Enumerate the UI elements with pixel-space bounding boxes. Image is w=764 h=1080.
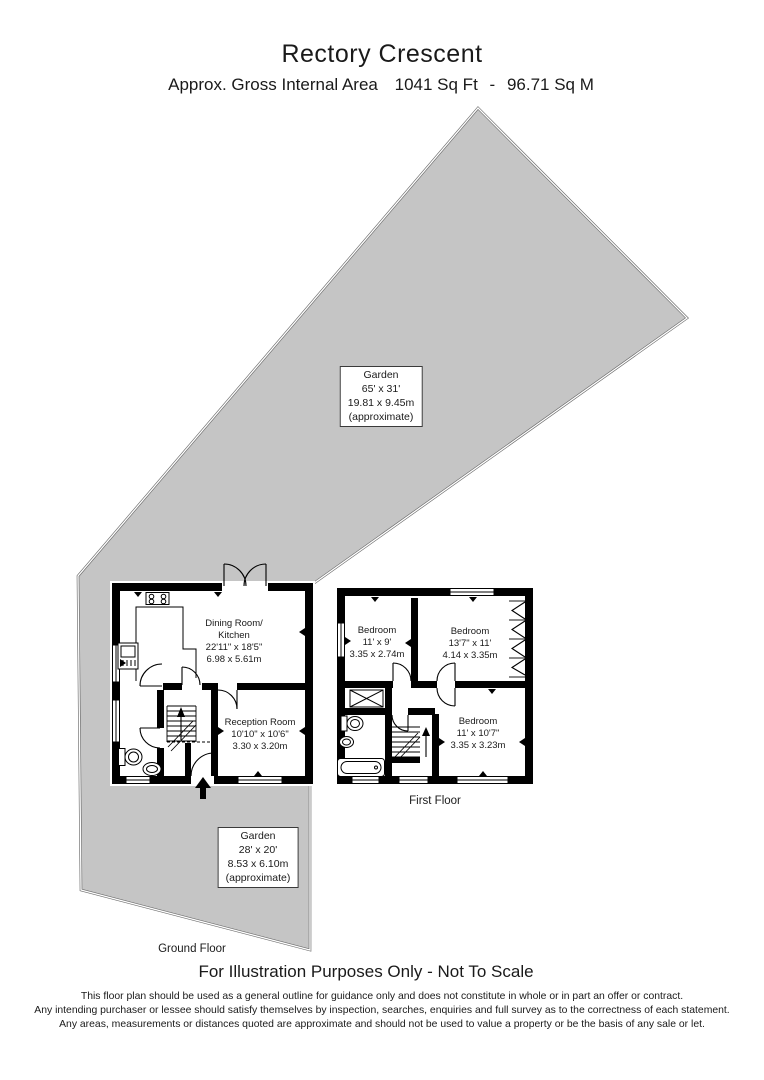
floor-label-first: First Floor — [409, 795, 461, 807]
disclaimer-line: Any intending purchaser or lessee should… — [0, 1004, 764, 1018]
toilet-icon — [341, 716, 363, 731]
first-floor-plan — [335, 586, 535, 788]
floor-plan-canvas — [0, 0, 764, 1080]
room-label-bedroom-2: Bedroom 13'7" x 11' 4.14 x 3.35m — [443, 626, 498, 662]
area-sqft: 1041 Sq Ft — [395, 75, 478, 94]
garden-approx-note: (approximate) — [348, 411, 415, 425]
garden-size-imperial: 28' x 20' — [226, 844, 291, 858]
area-sqm: 96.71 Sq M — [507, 75, 594, 94]
garden-area — [78, 108, 687, 950]
garden-name: Garden — [348, 369, 415, 383]
area-separator: - — [490, 75, 496, 94]
toilet-icon — [119, 749, 143, 766]
room-label-bedroom-3: Bedroom 11' x 10'7" 3.35 x 3.23m — [451, 716, 506, 752]
garden-label-rear: Garden 65' x 31' 19.81 x 9.45m (approxim… — [340, 366, 423, 427]
ground-floor-plan — [110, 564, 315, 799]
hob-icon — [146, 593, 169, 605]
disclaimer-line: Any areas, measurements or distances quo… — [0, 1018, 764, 1032]
shower-icon — [350, 690, 383, 707]
garden-size-metric: 8.53 x 6.10m — [226, 858, 291, 872]
room-label-reception: Reception Room 10'10" x 10'6" 3.30 x 3.2… — [225, 717, 296, 753]
garden-size-metric: 19.81 x 9.45m — [348, 397, 415, 411]
garden-name: Garden — [226, 830, 291, 844]
garden-label-front: Garden 28' x 20' 8.53 x 6.10m (approxima… — [218, 827, 299, 888]
garden-size-imperial: 65' x 31' — [348, 383, 415, 397]
floor-label-ground: Ground Floor — [158, 943, 226, 955]
area-summary: Approx. Gross Internal Area 1041 Sq Ft -… — [168, 75, 594, 95]
basin-icon — [340, 737, 354, 748]
disclaimer-line: This floor plan should be used as a gene… — [0, 990, 764, 1004]
area-label: Approx. Gross Internal Area — [168, 75, 378, 94]
room-label-bedroom-1: Bedroom 11' x 9' 3.35 x 2.74m — [350, 625, 405, 661]
bathtub-icon — [338, 759, 385, 777]
page-title: Rectory Crescent — [281, 40, 482, 69]
disclaimer-text: This floor plan should be used as a gene… — [0, 990, 764, 1031]
floor-plan-page: Rectory Crescent Approx. Gross Internal … — [0, 0, 764, 1080]
basin-icon — [143, 763, 161, 776]
room-label-dining-kitchen: Dining Room/ Kitchen 22'11" x 18'5" 6.98… — [205, 618, 263, 666]
notice-text: For Illustration Purposes Only - Not To … — [198, 962, 533, 982]
garden-approx-note: (approximate) — [226, 872, 291, 886]
